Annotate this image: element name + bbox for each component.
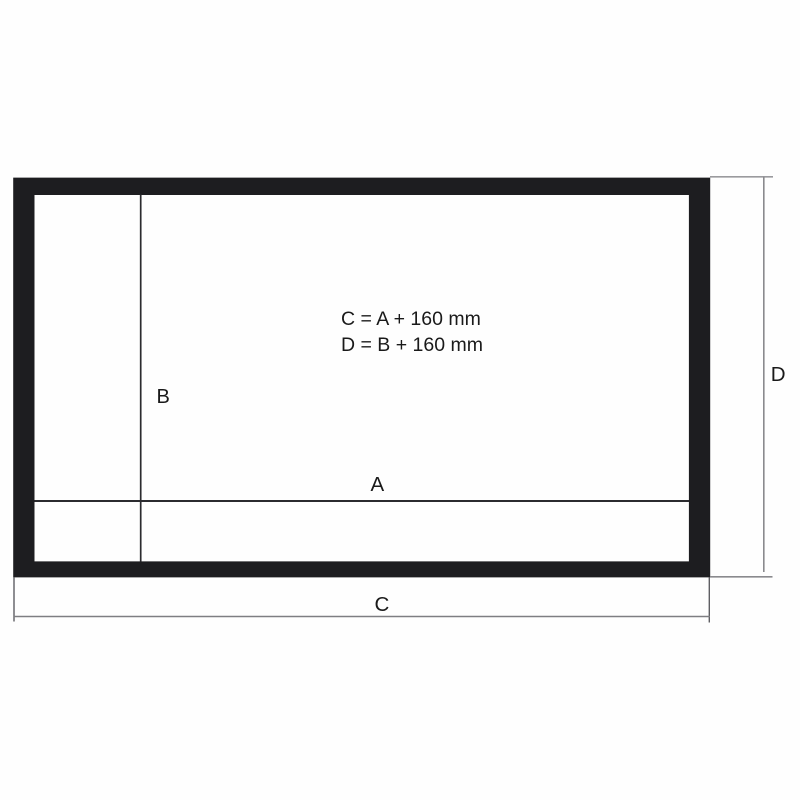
svg-text:B: B <box>157 386 170 408</box>
svg-text:C: C <box>375 593 390 616</box>
svg-text:C = A + 160 mm: C = A + 160 mm <box>341 308 481 330</box>
svg-text:D = B + 160 mm: D = B + 160 mm <box>341 334 483 356</box>
svg-text:D: D <box>771 363 786 386</box>
svg-text:A: A <box>371 473 385 496</box>
